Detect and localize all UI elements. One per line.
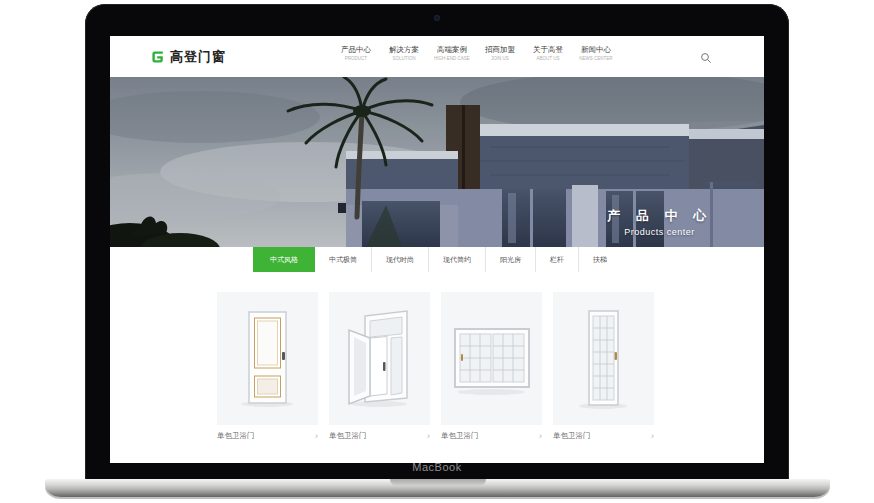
tab-chinese-style[interactable]: 中式风格 [253,247,315,272]
nav-label-zh: 招商加盟 [476,44,524,55]
nav-label-zh: 关于高登 [524,44,572,55]
search-icon[interactable] [700,50,712,62]
nav-label-zh: 产品中心 [332,44,380,55]
webcam-dot [434,15,440,21]
nav-item-join[interactable]: 招商加盟 JOIN US [476,44,524,62]
macbook-label: MacBook [85,461,789,473]
hero-text-block: 产 品 中 心 Products center [607,207,712,237]
product-category-tabs: 中式风格 中式极简 现代时尚 现代简约 阳光房 栏杆 扶梯 [110,247,764,272]
nav-label-en: PRODUCT [334,55,377,61]
product-image-open-casement-window [329,292,430,425]
nav-item-solution[interactable]: 解决方案 SOLUTION [380,44,428,62]
nav-item-cases[interactable]: 高端案例 HIGH-END CASE [428,44,476,62]
hero-banner: 产 品 中 心 Products center [110,77,764,247]
product-card[interactable]: 单包卫浴门 › [217,292,318,443]
nav-label-en: ABOUT US [526,55,569,61]
product-card-footer: 单包卫浴门 › [441,425,542,443]
chevron-right-icon: › [427,432,430,441]
site-header: 高登门窗 产品中心 PRODUCT 解决方案 SOLUTION 高端案例 HIG… [110,36,764,77]
product-image-grid-glass-door [553,292,654,425]
logo-g-icon [150,49,166,65]
tab-chinese-minimal[interactable]: 中式极简 [315,247,371,272]
nav-label-en: JOIN US [478,55,521,61]
macbook-lid: 高登门窗 产品中心 PRODUCT 解决方案 SOLUTION 高端案例 HIG… [85,4,789,480]
nav-label-en: HIGH-END CASE [430,55,473,61]
nav-label-zh: 解决方案 [380,44,428,55]
browser-screen: 高登门窗 产品中心 PRODUCT 解决方案 SOLUTION 高端案例 HIG… [110,36,764,463]
product-label: 单包卫浴门 [553,431,591,441]
tab-railing[interactable]: 栏杆 [535,247,578,272]
product-card[interactable]: 单包卫浴门 › [553,292,654,443]
product-label: 单包卫浴门 [441,431,479,441]
tab-modern-fashion[interactable]: 现代时尚 [371,247,428,272]
site-logo[interactable]: 高登门窗 [150,48,226,66]
product-image-panel-door [217,292,318,425]
macbook-mockup: 高登门窗 产品中心 PRODUCT 解决方案 SOLUTION 高端案例 HIG… [0,0,874,503]
hero-title-en: Products center [607,227,712,237]
product-label: 单包卫浴门 [329,431,367,441]
macbook-base-notch [390,479,486,486]
nav-item-news[interactable]: 新闻中心 NEWS CENTER [572,44,620,62]
product-image-sliding-grid-window [441,292,542,425]
nav-label-en: SOLUTION [382,55,425,61]
product-card-footer: 单包卫浴门 › [217,425,318,443]
chevron-right-icon: › [539,432,542,441]
nav-label-en: NEWS CENTER [574,55,617,61]
tab-stair[interactable]: 扶梯 [578,247,621,272]
nav-item-product[interactable]: 产品中心 PRODUCT [332,44,380,62]
chevron-right-icon: › [651,432,654,441]
product-card-footer: 单包卫浴门 › [329,425,430,443]
logo-text: 高登门窗 [170,48,226,66]
macbook-base [45,479,830,497]
nav-label-zh: 高端案例 [428,44,476,55]
tab-modern-simple[interactable]: 现代简约 [428,247,485,272]
product-card[interactable]: 单包卫浴门 › [329,292,430,443]
hero-title-zh: 产 品 中 心 [607,207,712,225]
product-card[interactable]: 单包卫浴门 › [441,292,542,443]
nav-label-zh: 新闻中心 [572,44,620,55]
chevron-right-icon: › [315,432,318,441]
product-card-footer: 单包卫浴门 › [553,425,654,443]
product-label: 单包卫浴门 [217,431,255,441]
nav-item-about[interactable]: 关于高登 ABOUT US [524,44,572,62]
product-grid: 单包卫浴门 › [217,292,657,443]
main-nav: 产品中心 PRODUCT 解决方案 SOLUTION 高端案例 HIGH-END… [332,44,620,62]
tab-sunroom[interactable]: 阳光房 [485,247,535,272]
